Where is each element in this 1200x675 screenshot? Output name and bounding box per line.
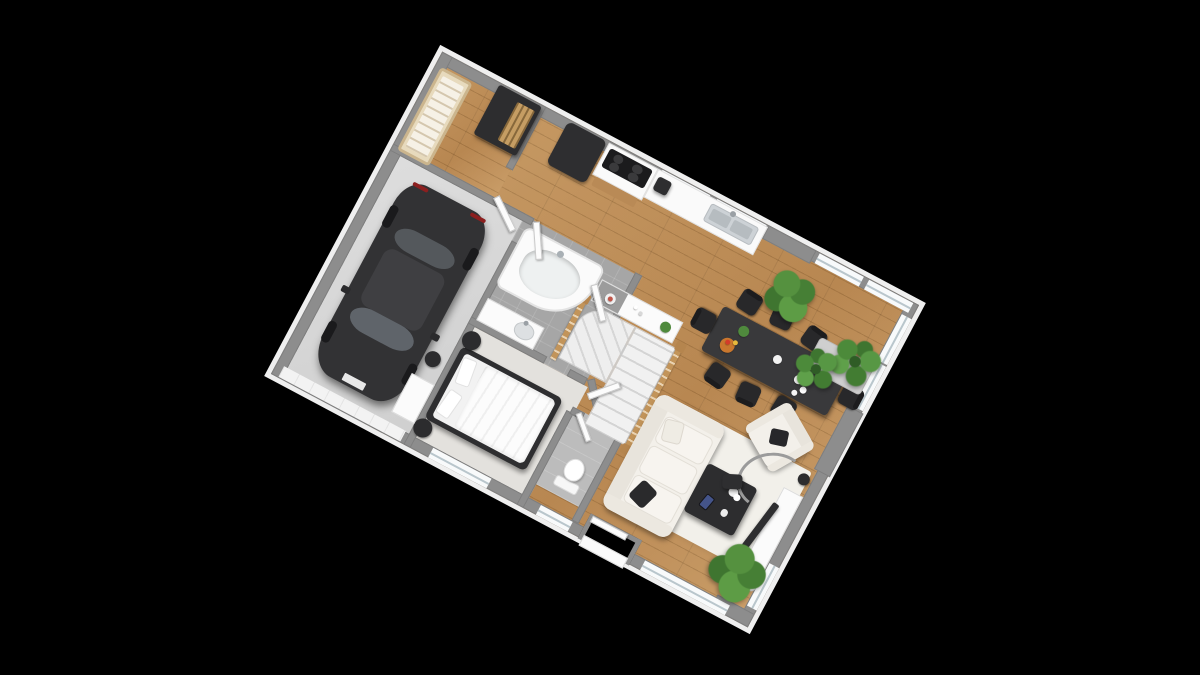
plant-palm-2 — [792, 345, 839, 392]
floorplan-3d-view[interactable] — [264, 45, 926, 634]
living-floor-lamp-shade — [722, 474, 743, 490]
floorplan-3d-render — [0, 0, 1200, 675]
